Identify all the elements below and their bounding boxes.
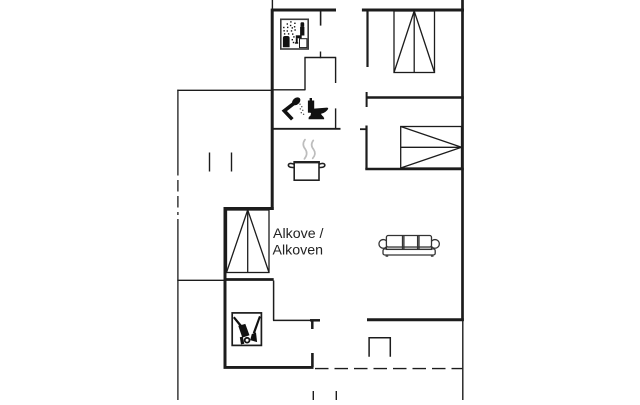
svg-text:Alkove /: Alkove /: [273, 226, 324, 242]
svg-text:Alkoven: Alkoven: [273, 242, 323, 258]
